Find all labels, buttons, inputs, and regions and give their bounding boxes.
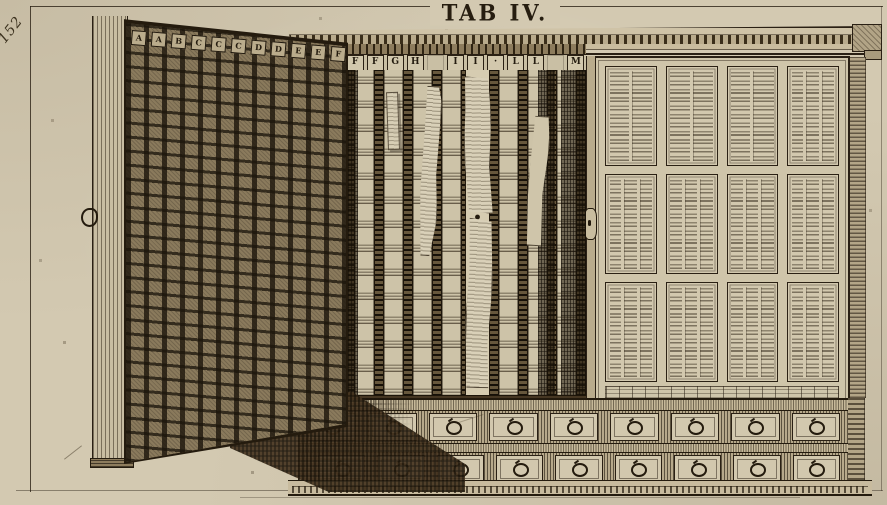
door-letter: E — [310, 44, 326, 60]
ring-pull-icon — [631, 463, 647, 477]
drawer — [550, 413, 598, 441]
floor-scratch — [64, 445, 82, 459]
door-ring-handle-icon — [81, 208, 98, 227]
shelf-letter: I — [467, 55, 484, 71]
label-column — [624, 179, 637, 269]
label-column — [746, 179, 759, 269]
label-column — [685, 287, 698, 377]
label-column — [731, 71, 750, 161]
base-right-side — [848, 398, 865, 480]
door-letter: C — [230, 38, 246, 54]
label-panel — [787, 174, 839, 274]
label-column — [731, 179, 743, 269]
hanging-specimen — [386, 92, 400, 150]
label-column — [746, 287, 759, 377]
drawer — [792, 413, 840, 441]
shelf-letter: L — [507, 55, 524, 71]
door-letter: E — [290, 43, 306, 59]
label-panel — [666, 174, 718, 274]
door-letter: C — [191, 35, 207, 51]
drawer — [733, 455, 780, 483]
label-column — [792, 71, 804, 161]
label-column — [670, 71, 689, 161]
label-panel — [787, 282, 839, 382]
page-number: 152 — [0, 13, 26, 46]
drawer — [496, 455, 543, 483]
label-panel — [666, 66, 718, 166]
shelf-letter: G — [387, 55, 404, 71]
label-column — [822, 71, 835, 161]
door-letter: C — [211, 36, 227, 52]
ring-pull-icon — [688, 421, 704, 435]
ring-pull-icon — [691, 463, 707, 477]
label-column — [731, 287, 743, 377]
label-panel — [727, 174, 779, 274]
ring-pull-icon — [513, 463, 529, 477]
shelf-letter — [427, 55, 444, 71]
paper-speckles — [0, 0, 1, 1]
plate-border-left — [30, 6, 31, 492]
label-panel — [787, 66, 839, 166]
drawer — [555, 455, 602, 483]
door-letter: D — [270, 41, 286, 57]
door-letter: A — [151, 32, 167, 48]
keyhole-slot — [588, 220, 591, 226]
cornice-right-return — [852, 24, 882, 52]
drawer — [674, 455, 721, 483]
label-panel — [605, 174, 657, 274]
cornice-right-step — [864, 50, 882, 60]
shelf-letter — [547, 55, 564, 71]
label-panel — [605, 66, 657, 166]
label-column — [685, 179, 698, 269]
open-door-lattice: AABCCCDDEEF — [126, 14, 346, 462]
drawer — [610, 413, 658, 441]
shelf-letter: F — [347, 55, 364, 71]
label-column — [610, 179, 622, 269]
specimen-column — [403, 70, 413, 396]
ring-pull-icon — [809, 421, 825, 435]
cornice-dentils — [288, 35, 876, 44]
label-column — [700, 287, 713, 377]
plate-border-right — [881, 6, 882, 491]
label-column — [806, 71, 819, 161]
label-column — [792, 179, 804, 269]
drawer — [671, 413, 719, 441]
right-door-closed — [594, 56, 850, 406]
label-column — [640, 179, 653, 269]
specimen-column — [499, 70, 518, 396]
door-letter: B — [171, 33, 187, 49]
shelf-letter: L — [527, 55, 544, 71]
drawer — [731, 413, 779, 441]
shelf-letter: · — [487, 55, 504, 71]
label-column — [700, 179, 713, 269]
label-column — [792, 287, 804, 377]
label-column — [806, 287, 819, 377]
label-column — [806, 179, 819, 269]
door-letter: F — [330, 46, 346, 62]
label-column — [632, 71, 652, 161]
engraving-plate: 152 TAB IV. — [0, 0, 887, 505]
label-column — [610, 71, 629, 161]
shelf-letter: M — [567, 55, 584, 71]
ring-pull-icon — [627, 421, 643, 435]
ring-pull-icon — [750, 463, 766, 477]
ring-pull-icon — [446, 421, 462, 435]
label-panel — [727, 66, 779, 166]
dark-column-shadow — [561, 70, 586, 396]
specimen-column — [374, 70, 384, 396]
ring-pull-icon — [567, 421, 583, 435]
drawer — [615, 455, 662, 483]
floor-shadow-line — [240, 497, 800, 498]
cornice-fascia — [288, 28, 876, 35]
shelf-letter: I — [447, 55, 464, 71]
ring-pull-icon — [809, 463, 825, 477]
label-panel — [666, 282, 718, 382]
plate-title: TAB IV. — [430, 0, 561, 26]
plate-title-wrap: TAB IV. — [370, 0, 620, 26]
ring-pull-icon — [572, 463, 588, 477]
open-door-edge — [92, 16, 128, 462]
label-column — [761, 179, 774, 269]
label-column — [693, 71, 713, 161]
door-letter: D — [250, 40, 266, 56]
label-column — [753, 71, 773, 161]
label-panel — [605, 282, 657, 382]
shelf-letter: H — [407, 55, 424, 71]
ring-pull-icon — [507, 421, 523, 435]
label-column — [822, 179, 835, 269]
door-letter: A — [131, 30, 147, 46]
specimen-column — [518, 70, 528, 396]
label-column — [640, 287, 653, 377]
label-column — [624, 287, 637, 377]
drawer — [489, 413, 537, 441]
label-column — [822, 287, 835, 377]
label-panel — [727, 282, 779, 382]
drawer — [793, 455, 840, 483]
label-column — [670, 179, 682, 269]
label-panel-grid — [605, 66, 839, 382]
label-column — [670, 287, 682, 377]
label-column — [761, 287, 774, 377]
specimen-column — [442, 70, 461, 396]
label-column — [610, 287, 622, 377]
shelf-letter: F — [367, 55, 384, 71]
ring-pull-icon — [748, 421, 764, 435]
